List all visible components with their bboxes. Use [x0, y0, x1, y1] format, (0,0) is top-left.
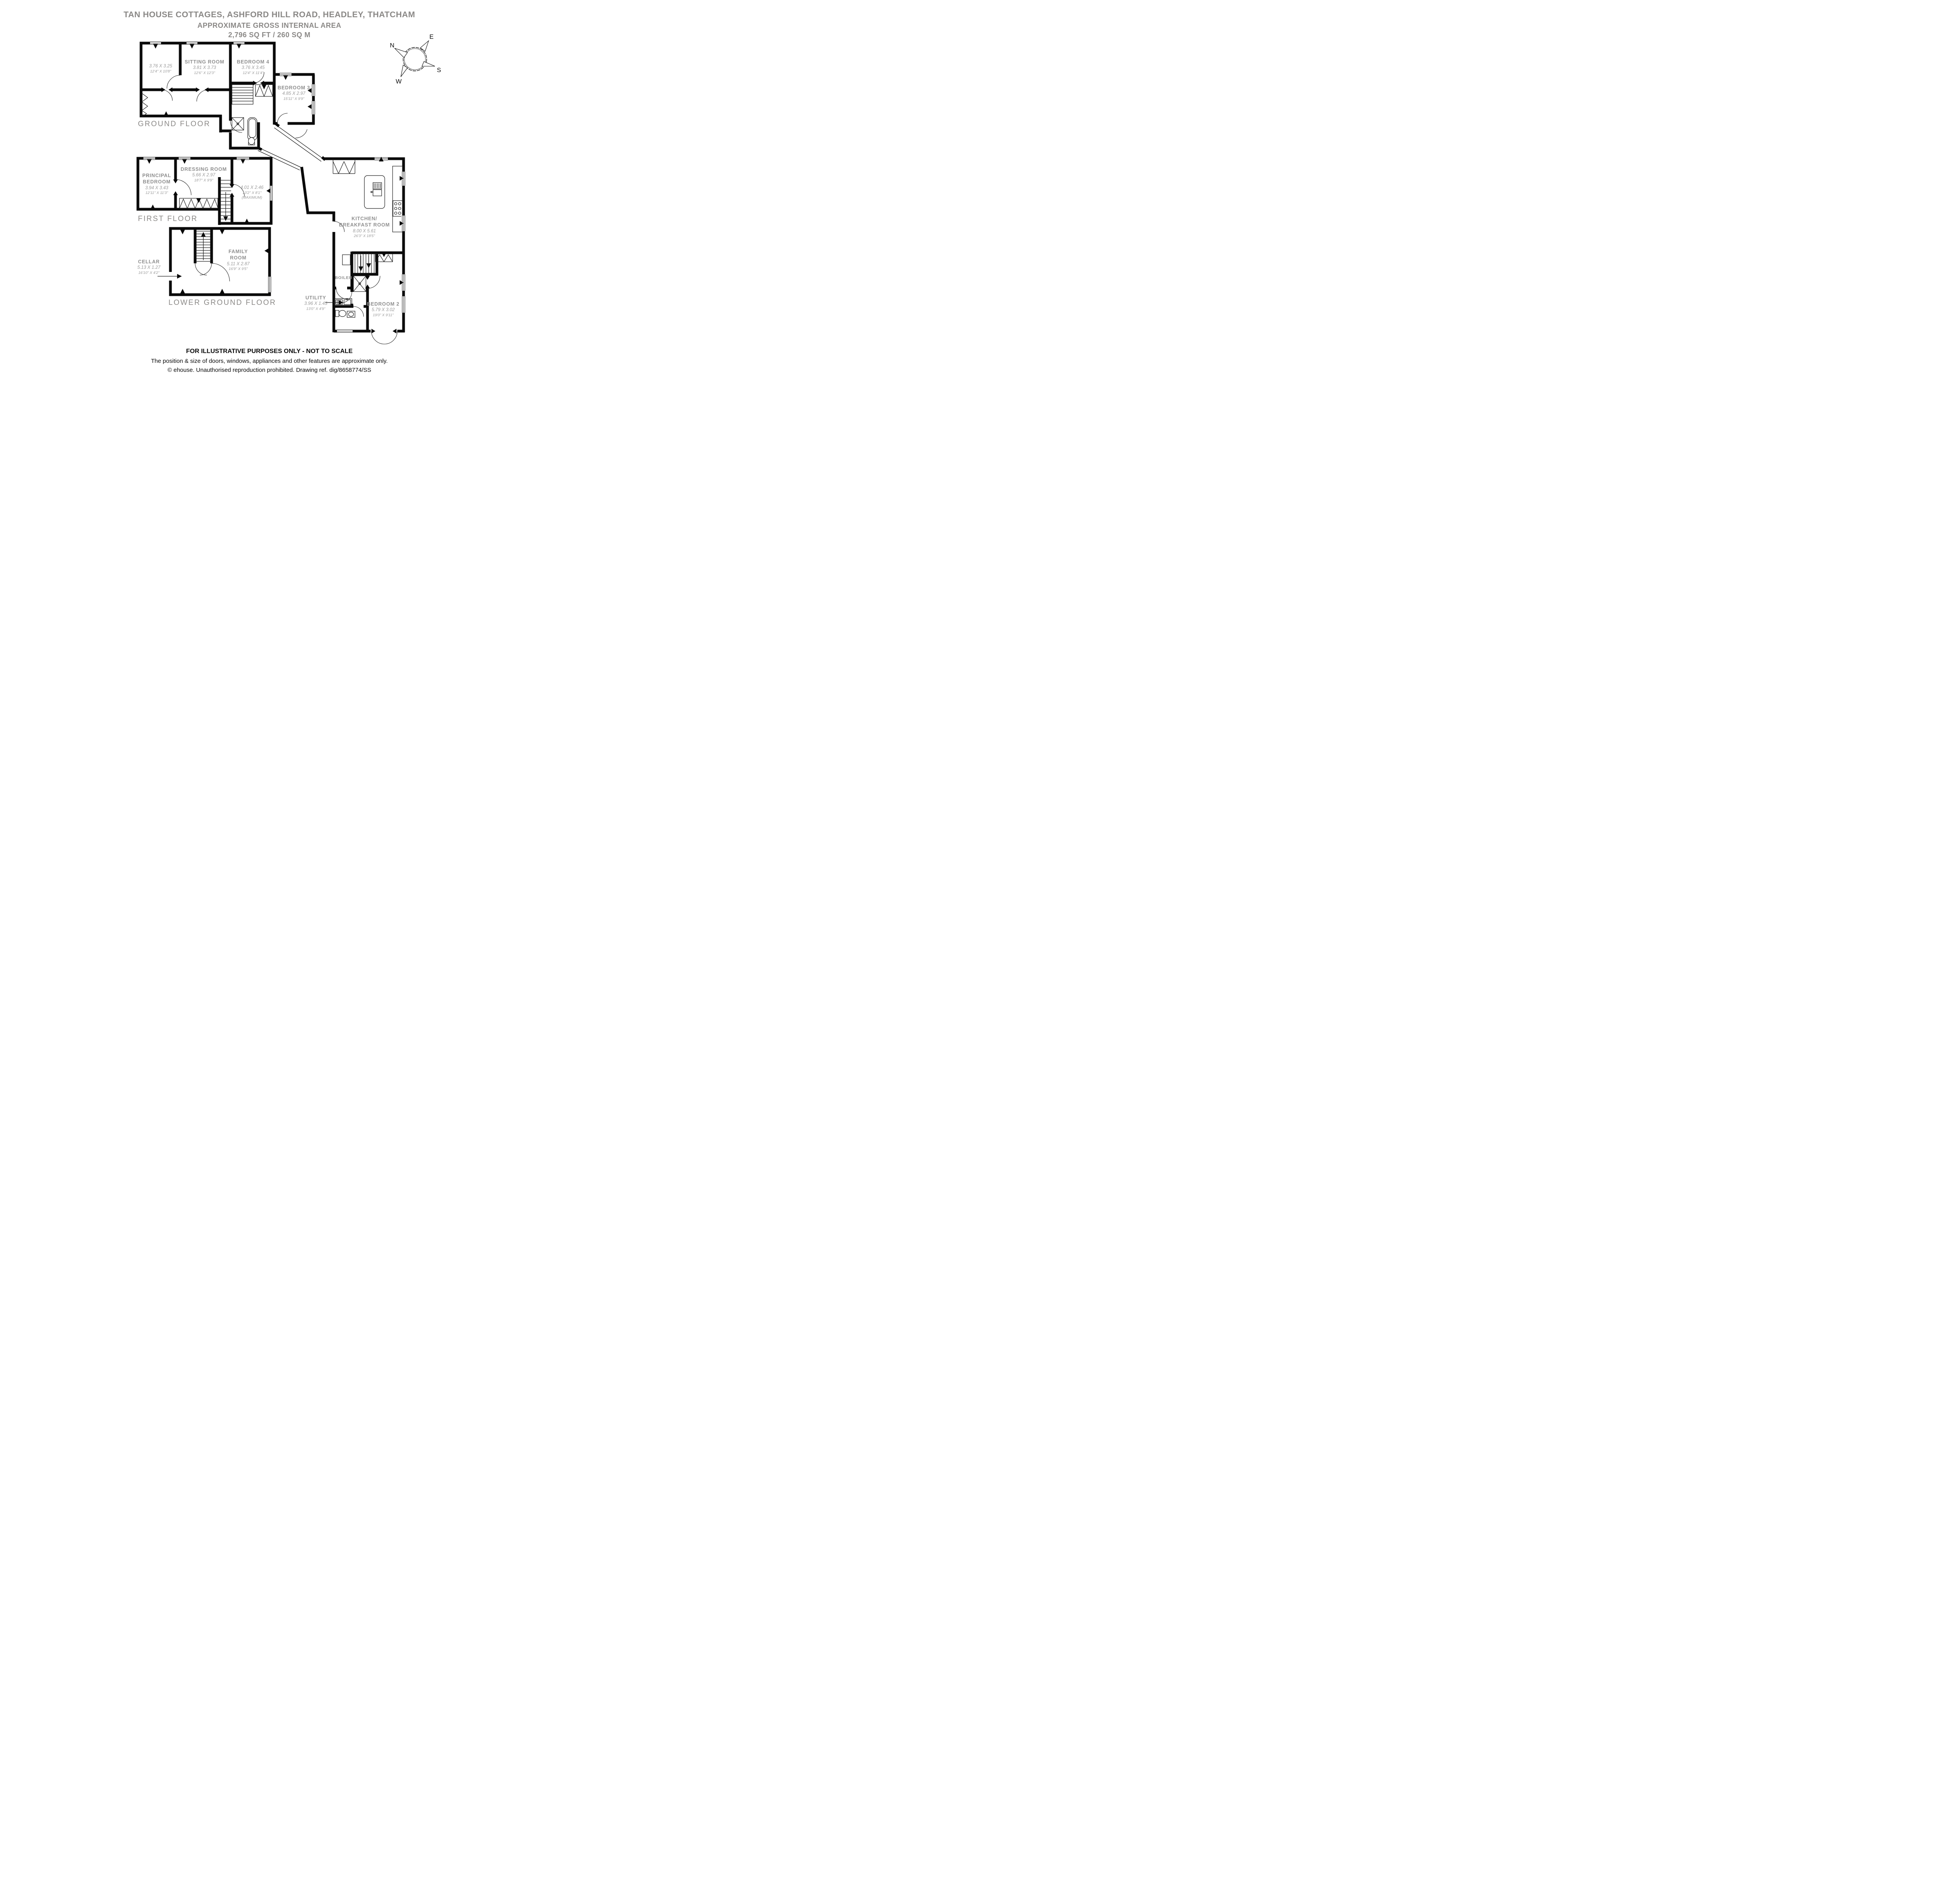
wing-staircase	[355, 253, 374, 274]
first-floor-label: FIRST FLOOR	[138, 215, 198, 223]
compass-south-label: S	[437, 67, 441, 74]
footer-disclaimer: FOR ILLUSTRATIVE PURPOSES ONLY - NOT TO …	[0, 348, 539, 355]
compass-west-label: W	[396, 78, 402, 85]
ground-floor-label: GROUND FLOOR	[138, 120, 210, 129]
toilet	[339, 310, 346, 317]
boiler-unit	[342, 255, 350, 265]
label-dressing-room: DRESSING ROOM 5.66 X 2.97 18'7" X 9'9"	[181, 166, 227, 183]
label-sitting-room: SITTING ROOM 3.81 X 3.73 12'6" X 12'3"	[185, 59, 224, 76]
ground-staircase	[232, 85, 253, 104]
ground-windows	[150, 41, 315, 114]
label-cellar: CELLAR 5.13 X 1.27 16'10" X 4'2"	[138, 259, 161, 276]
label-bedroom-3: BEDROOM 3 4.85 X 2.97 15'11" X 9'9"	[278, 85, 310, 102]
label-utility: UTILITY 3.96 X 1.45 13'0" X 4'9"	[304, 295, 328, 312]
wing-shower	[353, 276, 366, 292]
lower-ground-floor-label: LOWER GROUND FLOOR	[168, 299, 276, 307]
utility-sink	[335, 299, 352, 306]
footer-approximation-note: The position & size of doors, windows, a…	[0, 358, 539, 364]
bathroom-fixtures	[232, 118, 257, 145]
compass-east-label: E	[429, 34, 434, 40]
ground-floor-plan	[141, 41, 325, 170]
label-kitchen-breakfast-room: KITCHEN/ BREAKFAST ROOM 8.00 X 5.61 26'3…	[339, 216, 390, 239]
label-principal-bedroom: PRINCIPAL BEDROOM 3.94 X 3.43 12'11" X 1…	[142, 172, 171, 196]
cellar-arrow-icon	[158, 274, 182, 279]
lower-ground-plan	[158, 227, 272, 296]
lower-opening-markers	[180, 230, 268, 293]
footer-copyright: © ehouse. Unauthorised reproduction proh…	[0, 367, 539, 373]
label-family-room: FAMILY ROOM 5.11 X 2.87 16'9" X 9'5"	[227, 248, 250, 272]
label-boiler: BOILER	[335, 275, 352, 281]
glazed-link-corridor	[258, 125, 324, 170]
floorplan-page: TAN HOUSE COTTAGES, ASHFORD HILL ROAD, H…	[0, 0, 539, 381]
floorplan-drawing: N E S W	[0, 0, 539, 381]
hob-icon	[393, 201, 402, 216]
label-reception-room: 3.76 X 3.25 12'4" X 10'8"	[149, 63, 172, 74]
label-bedroom-4: BEDROOM 4 3.76 X 3.45 12'4" X 11'4"	[237, 59, 270, 76]
kitchen-island	[364, 176, 385, 208]
bay-window	[333, 159, 355, 174]
lower-door-arcs	[195, 263, 230, 281]
label-bedroom-2: BEDROOM 2 5.79 X 3.02 19'0" X 9'11"	[367, 301, 400, 318]
compass-north-label: N	[390, 42, 395, 49]
ground-opening-markers	[153, 44, 311, 116]
compass-rose-icon: N E S W	[390, 34, 441, 85]
shower	[232, 118, 244, 130]
sink	[373, 190, 382, 196]
left-wall-steps	[142, 93, 148, 117]
lower-ground-walls	[170, 227, 270, 296]
toilet	[248, 138, 255, 145]
wing-door-arcs	[334, 221, 397, 344]
cistern	[335, 310, 339, 317]
lower-windows	[268, 277, 272, 292]
label-landing-room: 4.01 X 2.46 13'2" X 8'1" (MAXIMUM)	[241, 185, 264, 201]
wc-fixtures	[335, 310, 355, 317]
